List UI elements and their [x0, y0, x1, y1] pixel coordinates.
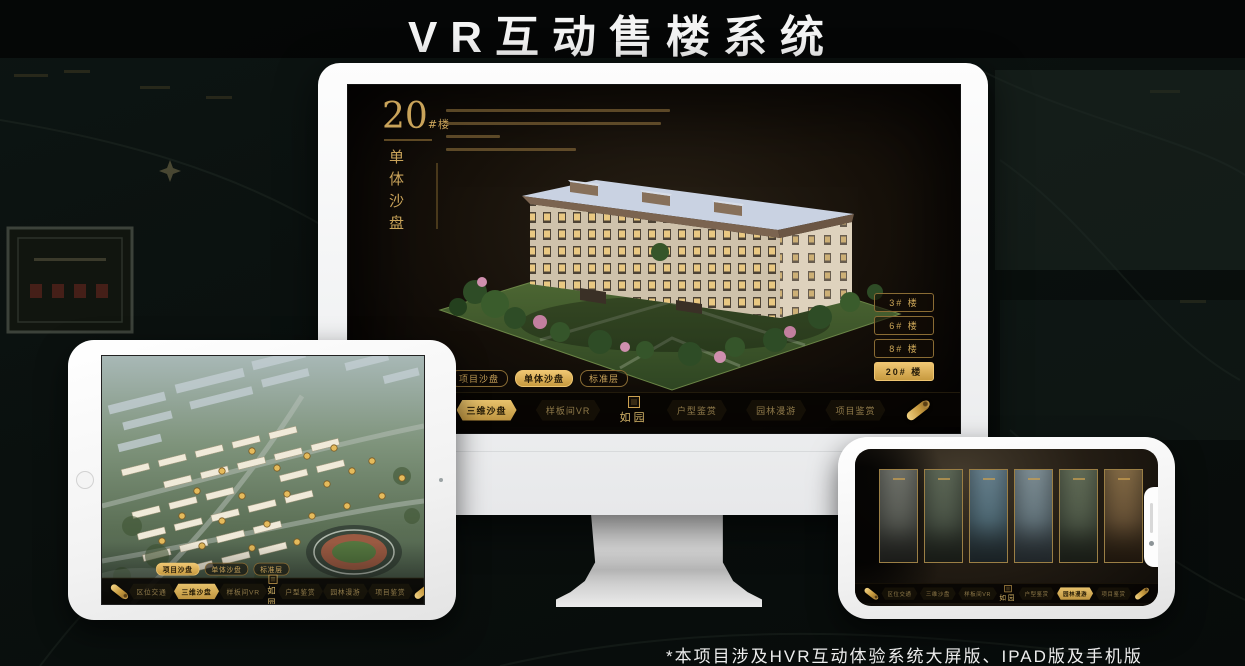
nav-garden-roam[interactable]: 园林漫游 — [323, 583, 368, 599]
tab-project-sandtable[interactable]: 项目沙盘 — [450, 370, 508, 387]
nav-floorplan[interactable]: 户型鉴赏 — [1019, 587, 1055, 600]
page: VR互动售楼系统 20#楼 单体沙盘 — [0, 0, 1245, 666]
tablet-screen: 项目沙盘 单体沙盘 标准层 区位交通 三维沙盘 样板间VR 如园 户型鉴赏 园林… — [101, 355, 425, 605]
floor-button-group: 3# 楼 6# 楼 8# 楼 20# 楼 — [874, 293, 934, 381]
scroll-icon[interactable] — [1134, 586, 1150, 600]
nav-showroom-vr[interactable]: 样板间VR — [958, 587, 997, 600]
nav-location-traffic[interactable]: 区位交通 — [881, 587, 917, 600]
floor-button-20[interactable]: 20# 楼 — [874, 362, 934, 381]
phone-bottom-nav: 区位交通 三维沙盘 样板间VR 如园 户型鉴赏 园林漫游 项目鉴赏 — [855, 583, 1158, 603]
nav-project-view[interactable]: 项目鉴赏 — [825, 400, 885, 421]
floor-subtitle: 单体沙盘 — [386, 149, 407, 237]
building-3d-model[interactable] — [420, 141, 920, 393]
nav-floorplan[interactable]: 户型鉴赏 — [278, 583, 323, 599]
nav-floorplan[interactable]: 户型鉴赏 — [667, 400, 727, 421]
nav-3d-sandtable[interactable]: 三维沙盘 — [920, 587, 956, 600]
gallery-panel[interactable] — [1014, 469, 1053, 563]
page-title: VR互动售楼系统 — [0, 1, 1245, 65]
monitor-mode-tabs: 项目沙盘 单体沙盘 标准层 — [450, 370, 628, 387]
tab-project-sandtable[interactable]: 项目沙盘 — [156, 563, 200, 576]
ruyuan-seal-icon — [268, 574, 277, 583]
gallery-panel[interactable] — [924, 469, 963, 563]
footnote: *本项目涉及HVR互动体验系统大屏版、IPAD版及手机版 — [666, 642, 1143, 666]
scroll-icon[interactable] — [413, 583, 425, 600]
compass-star — [159, 160, 181, 182]
scroll-icon[interactable] — [109, 583, 129, 600]
tablet-nav-overlay: 项目沙盘 单体沙盘 标准层 区位交通 三维沙盘 样板间VR 如园 户型鉴赏 园林… — [102, 563, 424, 604]
ruyuan-seal-icon — [1004, 585, 1011, 592]
phone-notch — [1144, 487, 1158, 567]
tablet-device: 项目沙盘 单体沙盘 标准层 区位交通 三维沙盘 样板间VR 如园 户型鉴赏 园林… — [68, 340, 456, 620]
nav-garden-roam[interactable]: 园林漫游 — [746, 400, 806, 421]
ruyuan-logo: 如园 — [267, 574, 278, 605]
floor-number: 20#楼 — [382, 99, 450, 135]
tab-single-sandtable[interactable]: 单体沙盘 — [515, 370, 573, 387]
nav-showroom-vr[interactable]: 样板间VR — [219, 583, 267, 599]
scene-gallery — [879, 469, 1143, 563]
tab-standard-floor[interactable]: 标准层 — [580, 370, 628, 387]
floor-button-8[interactable]: 8# 楼 — [874, 339, 934, 358]
phone-device: 区位交通 三维沙盘 样板间VR 如园 户型鉴赏 园林漫游 项目鉴赏 — [838, 437, 1175, 619]
tab-single-sandtable[interactable]: 单体沙盘 — [205, 563, 249, 576]
nav-showroom-vr[interactable]: 样板间VR — [536, 400, 601, 421]
tablet-bottom-nav: 区位交通 三维沙盘 样板间VR 如园 户型鉴赏 园林漫游 项目鉴赏 — [102, 578, 424, 604]
scroll-icon[interactable] — [905, 398, 931, 421]
tablet-home-button[interactable] — [76, 471, 94, 489]
ruyuan-seal-icon — [628, 396, 640, 408]
ruyuan-logo: 如园 — [999, 585, 1016, 602]
floor-button-3[interactable]: 3# 楼 — [874, 293, 934, 312]
phone-nav-overlay: 区位交通 三维沙盘 样板间VR 如园 户型鉴赏 园林漫游 项目鉴赏 — [855, 583, 1158, 603]
nav-3d-sandtable[interactable]: 三维沙盘 — [174, 583, 219, 599]
floor-button-6[interactable]: 6# 楼 — [874, 316, 934, 335]
nav-3d-sandtable[interactable]: 三维沙盘 — [457, 400, 517, 421]
tablet-camera — [439, 478, 443, 482]
phone-camera — [1149, 541, 1154, 546]
gallery-panel[interactable] — [1104, 469, 1143, 563]
tablet-mode-tabs: 项目沙盘 单体沙盘 标准层 — [156, 563, 424, 576]
gallery-panel[interactable] — [969, 469, 1008, 563]
nav-project-view[interactable]: 项目鉴赏 — [1095, 587, 1131, 600]
nav-garden-roam[interactable]: 园林漫游 — [1057, 587, 1093, 600]
phone-screen: 区位交通 三维沙盘 样板间VR 如园 户型鉴赏 园林漫游 项目鉴赏 — [855, 449, 1158, 606]
nav-location-traffic[interactable]: 区位交通 — [129, 583, 174, 599]
gallery-panel[interactable] — [1059, 469, 1098, 563]
scroll-icon[interactable] — [863, 586, 879, 600]
nav-project-view[interactable]: 项目鉴赏 — [368, 583, 413, 599]
phone-speaker — [1150, 503, 1153, 533]
ruyuan-logo: 如园 — [620, 396, 648, 425]
gallery-panel[interactable] — [879, 469, 918, 563]
background-plaque — [8, 228, 132, 332]
